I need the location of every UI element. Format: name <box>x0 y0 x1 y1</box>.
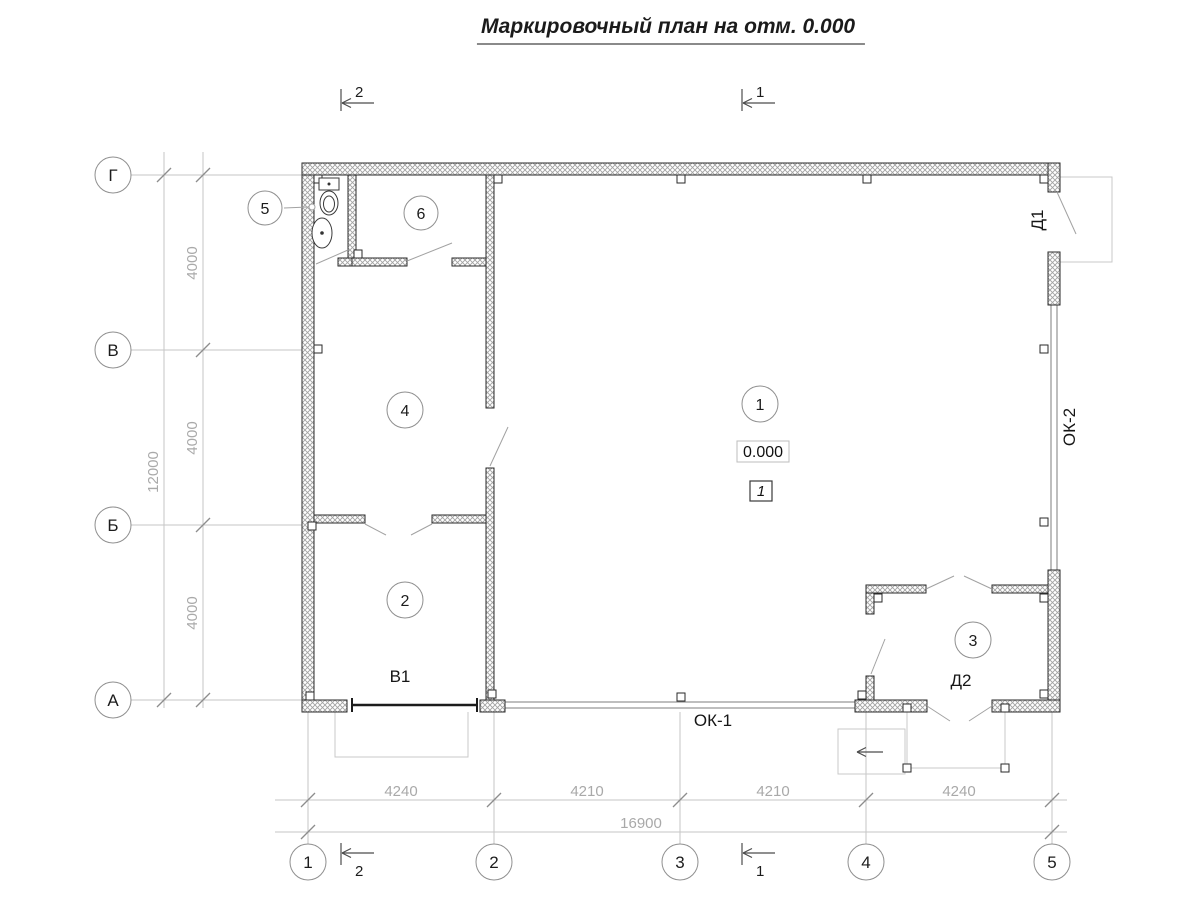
grid-col-3: 3 <box>675 853 684 872</box>
apron-gate-b1 <box>335 712 468 757</box>
wall-right-mid <box>1048 252 1060 305</box>
grid-col-5: 5 <box>1047 853 1056 872</box>
partition-room24-left <box>314 515 365 523</box>
door-leaf-room6 <box>407 243 452 261</box>
partition-main-upper <box>486 175 494 408</box>
pier-bottom-1 <box>302 700 347 712</box>
door-leaf-d2-left <box>927 706 950 721</box>
door-leaf-room2-left <box>365 524 386 535</box>
marker-squares <box>306 175 1048 772</box>
room-number-5: 5 <box>261 201 270 218</box>
door-leaf-d2-right <box>969 706 992 721</box>
grid-col-2: 2 <box>489 853 498 872</box>
door-leaf-room2-right <box>411 524 432 535</box>
porch-door-d1 <box>1060 177 1112 262</box>
section-mark-1-bottom: 1 <box>742 843 775 880</box>
grid-row-g: Г <box>108 166 117 185</box>
section-marks: 2 1 2 1 <box>341 84 775 880</box>
floor-type-value: 1 <box>757 483 765 500</box>
window-ok1 <box>505 702 855 708</box>
gate-b1 <box>352 698 477 712</box>
svg-text:2: 2 <box>355 84 363 101</box>
door-leaf-tambour-side <box>871 639 885 674</box>
grid-row-b: Б <box>107 516 118 535</box>
dim-bottom-1: 4240 <box>384 783 417 800</box>
tambour-top-right <box>992 585 1048 593</box>
door-leaf-tambour-right <box>964 576 992 589</box>
dim-bottom-3: 4210 <box>756 783 789 800</box>
leader-dot-room5 <box>309 204 315 210</box>
label-door-d1: Д1 <box>1028 210 1047 231</box>
window-ok2 <box>1051 305 1057 570</box>
dimension-texts: 4000 4000 4000 12000 4240 4210 4210 4240… <box>145 246 976 832</box>
svg-text:1: 1 <box>756 863 764 880</box>
label-door-d2: Д2 <box>951 671 972 690</box>
pier-bottom-3 <box>855 700 927 712</box>
grid-column-markers: 1 2 3 4 5 <box>290 844 1070 880</box>
label-window-ok1: ОК-1 <box>694 711 732 730</box>
wall-left <box>302 175 314 712</box>
grid-col-4: 4 <box>861 853 870 872</box>
grid-row-a: А <box>107 691 119 710</box>
label-gate-b1: В1 <box>390 667 411 686</box>
grid-row-markers: Г В Б А <box>95 157 131 718</box>
door-leaf-room4 <box>490 427 508 466</box>
label-window-ok2: ОК-2 <box>1060 408 1079 446</box>
tambour-stub-lower <box>866 676 874 700</box>
door-leaf-d1 <box>1057 192 1076 234</box>
wall-right-upper <box>1048 163 1060 192</box>
toilet-fixture <box>319 178 339 215</box>
dim-left-1: 4000 <box>184 246 201 279</box>
room-number-1: 1 <box>756 397 765 414</box>
elevation-value: 0.000 <box>743 444 783 461</box>
pier-bottom-2 <box>480 700 505 712</box>
dim-bottom-4: 4240 <box>942 783 975 800</box>
dim-left-2: 4000 <box>184 421 201 454</box>
tambour-top-left <box>866 585 926 593</box>
porch-outlines <box>335 177 1112 774</box>
room-number-4: 4 <box>401 403 410 420</box>
dim-left-3: 4000 <box>184 596 201 629</box>
dimension-ticks <box>157 168 1059 839</box>
partition-room6-left <box>352 258 407 266</box>
floor-type-mark: 1 <box>750 481 772 501</box>
axis-lines <box>131 152 1067 844</box>
partition-main-lower <box>486 468 494 700</box>
sink-fixture <box>312 218 332 248</box>
partition-room6-right <box>452 258 486 266</box>
room-number-2: 2 <box>401 593 410 610</box>
wall-top <box>302 163 1060 175</box>
section-mark-1-top: 1 <box>742 84 775 111</box>
grid-col-1: 1 <box>303 853 312 872</box>
section-mark-2-bottom: 2 <box>341 843 374 880</box>
elevation-mark: 0.000 <box>737 441 789 462</box>
dim-bottom-total: 16900 <box>620 815 662 832</box>
svg-text:1: 1 <box>756 84 764 101</box>
partition-room24-right <box>432 515 486 523</box>
room-number-6: 6 <box>417 206 426 223</box>
grid-row-v: В <box>107 341 118 360</box>
floor-plan-canvas: 4000 4000 4000 12000 4240 4210 4210 4240… <box>0 0 1200 900</box>
wall-right-lower <box>1048 570 1060 712</box>
svg-text:2: 2 <box>355 863 363 880</box>
dim-bottom-2: 4210 <box>570 783 603 800</box>
porch-door-d2 <box>907 712 1005 768</box>
door-leaf-tambour-left <box>926 576 954 589</box>
ramp-direction-arrow <box>857 748 883 757</box>
room-number-3: 3 <box>969 633 978 650</box>
dim-left-total: 12000 <box>145 451 162 493</box>
walls <box>302 163 1060 712</box>
section-mark-2-top: 2 <box>341 84 374 111</box>
